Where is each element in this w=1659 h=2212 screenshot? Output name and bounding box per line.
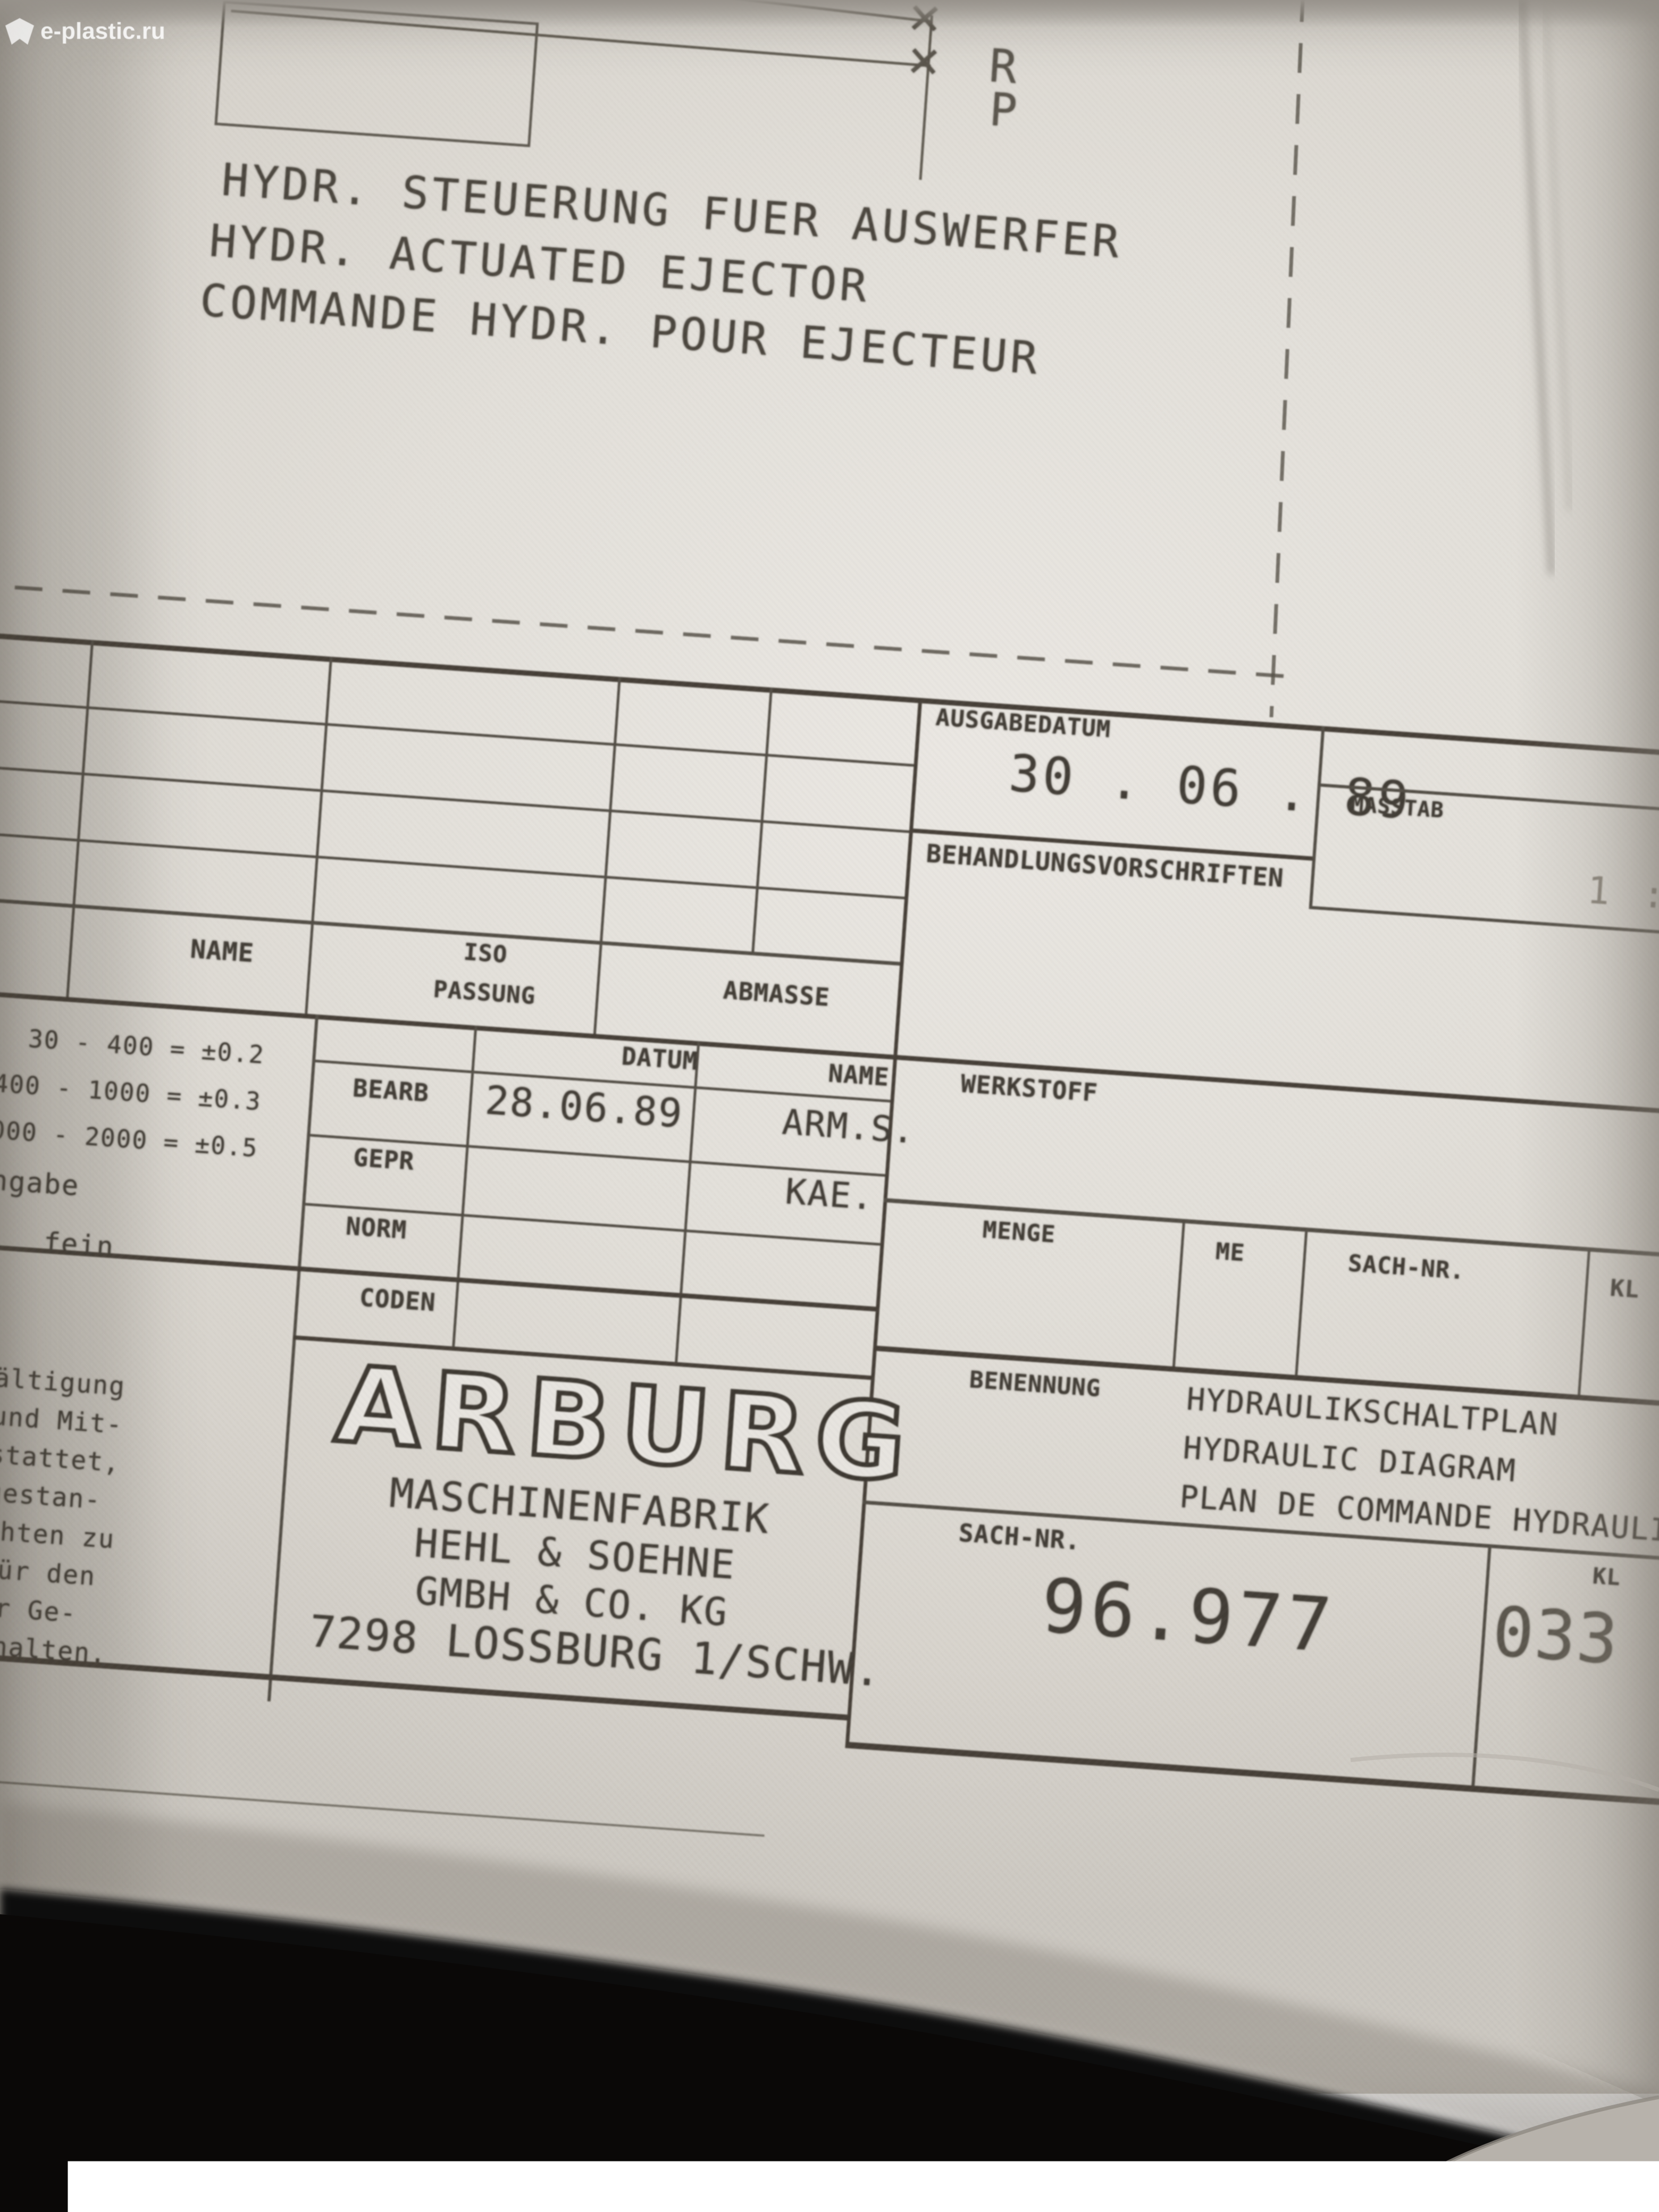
kl-col-line bbox=[1578, 1247, 1590, 1395]
dashed-frame-line bbox=[0, 582, 1304, 680]
sachnr-value: 96.977 bbox=[1039, 1569, 1338, 1664]
note-line-7: ung oder Ge- bbox=[0, 1587, 78, 1627]
watermark-logo-icon bbox=[5, 18, 34, 45]
note-line-3: cht gestattet, bbox=[0, 1435, 121, 1476]
kl-col-label: KL bbox=[1610, 1277, 1640, 1302]
datum-col-divider bbox=[452, 1026, 477, 1347]
revision-col-line bbox=[66, 640, 94, 997]
coden-label: CODEN bbox=[359, 1285, 437, 1315]
menge-label: MENGE bbox=[982, 1218, 1056, 1246]
name-header: NAME bbox=[827, 1061, 890, 1090]
note-line-4: ich zugestan- bbox=[0, 1473, 102, 1513]
werkstoff-label: WERKSTOFF bbox=[960, 1071, 1099, 1105]
page-corner-curl bbox=[1367, 2097, 1659, 2212]
benennung-label: BENENNUNG bbox=[969, 1368, 1102, 1401]
behandlung-label: BEHANDLUNGSVORSCHRIFTEN bbox=[925, 841, 1284, 891]
me-col-line bbox=[1172, 1219, 1185, 1367]
tolerance-word-1: angabe bbox=[0, 1166, 80, 1201]
watermark-text: e-plastic.ru bbox=[40, 18, 165, 45]
dark-background bbox=[0, 1889, 1659, 2212]
dashed-frame-vertical bbox=[1269, 0, 1305, 717]
bearb-name-value: ARM.S. bbox=[781, 1104, 916, 1149]
fit-col-iso-1: ISO bbox=[463, 941, 508, 967]
benennung-title-en: HYDRAULIC DIAGRAM bbox=[1182, 1432, 1517, 1487]
me-label: ME bbox=[1215, 1240, 1246, 1266]
sachnr-col-label: SACH-NR. bbox=[1347, 1252, 1465, 1283]
gepr-name-value: KAE. bbox=[784, 1174, 875, 1215]
tolerance-word-2: fein bbox=[43, 1229, 115, 1261]
note-line-1: rvielfältigung bbox=[0, 1358, 127, 1400]
revision-col-line bbox=[593, 677, 621, 1034]
frame-bottom-line bbox=[0, 1773, 765, 1837]
revision-row-line bbox=[0, 697, 914, 767]
tolerance-line-3: 1000 - 2000 = ±0.5 bbox=[0, 1107, 259, 1160]
fit-col-name: NAME bbox=[189, 936, 255, 966]
fit-header-top-line bbox=[0, 895, 900, 966]
titleblock-top-border bbox=[0, 631, 1659, 763]
port-label-p: P bbox=[988, 87, 1020, 135]
revision-row-line bbox=[0, 764, 909, 833]
closed-port-symbol-p: ✕ bbox=[907, 32, 943, 86]
tolerance-line-1: 30 - 400 = ±0.2 bbox=[0, 1017, 265, 1067]
kl-label: KL bbox=[1592, 1565, 1621, 1589]
kl-value: 033 bbox=[1490, 1598, 1621, 1674]
bearb-datum-value: 28.06.89 bbox=[484, 1080, 684, 1134]
datum-header: DATUM bbox=[621, 1044, 698, 1074]
fit-col-iso-2: PASSUNG bbox=[432, 978, 536, 1008]
dark-background-core bbox=[0, 1914, 1659, 2212]
left-col-divider bbox=[267, 1015, 319, 1702]
revision-col-line bbox=[305, 657, 332, 1014]
revision-row-line bbox=[0, 830, 904, 900]
bearb-label: BEARB bbox=[352, 1076, 430, 1105]
drawing-sheet: ✕ ✕ R P HYDR. STEUERUNG FUER AUSWERFER H… bbox=[0, 569, 1659, 1915]
tolerance-line-2: 400 - 1000 = ±0.3 bbox=[0, 1062, 262, 1114]
fit-col-abmasse: ABMASSE bbox=[723, 978, 831, 1010]
norm-label: NORM bbox=[345, 1214, 408, 1243]
titleblock-bottom-heavy bbox=[845, 1741, 1659, 1807]
note-line-2: rtung und Mit- bbox=[0, 1396, 124, 1438]
page-corner-curl-edge bbox=[1367, 2097, 1659, 2212]
page-fold-line-2 bbox=[1545, 0, 1570, 510]
kl-value-divider bbox=[1471, 1548, 1491, 1786]
masstab-value: 1 : 1 bbox=[1586, 872, 1659, 918]
note-line-6: echte für den bbox=[0, 1549, 97, 1589]
main-vertical-divider bbox=[845, 698, 922, 1742]
page-fold-line bbox=[1522, 0, 1552, 574]
masstab-label: MASSTAB bbox=[1350, 794, 1445, 822]
sachnr-label: SACH-NR. bbox=[958, 1520, 1082, 1553]
photo-of-technical-drawing: { "photo": { "watermark": "e-plastic.ru"… bbox=[0, 0, 1659, 2212]
name-col-divider bbox=[675, 1041, 700, 1362]
norm-row-bottom-heavy bbox=[0, 1240, 876, 1312]
watermark: e-plastic.ru bbox=[5, 18, 165, 45]
note-line-5: erpflichten zu bbox=[0, 1511, 116, 1553]
gepr-label: GEPR bbox=[353, 1145, 415, 1174]
sachnr-col-line bbox=[1295, 1227, 1308, 1375]
